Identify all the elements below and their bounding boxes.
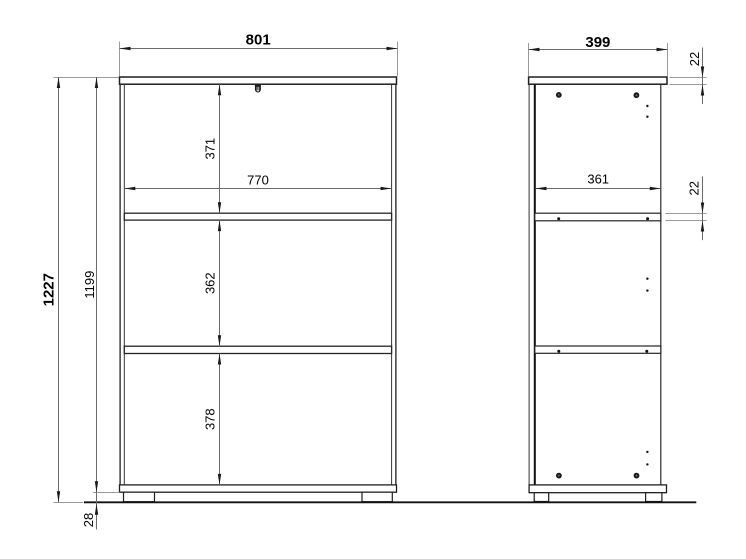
svg-text:770: 770	[247, 173, 269, 188]
svg-text:801: 801	[246, 32, 271, 49]
svg-text:371: 371	[203, 138, 218, 160]
svg-text:1227: 1227	[41, 273, 58, 306]
svg-text:22: 22	[687, 181, 702, 195]
svg-text:362: 362	[203, 272, 218, 294]
svg-text:399: 399	[585, 34, 610, 51]
svg-text:22: 22	[687, 52, 702, 66]
svg-text:1199: 1199	[82, 271, 97, 299]
svg-text:378: 378	[203, 408, 218, 430]
svg-text:28: 28	[81, 513, 96, 527]
svg-text:361: 361	[587, 172, 609, 187]
